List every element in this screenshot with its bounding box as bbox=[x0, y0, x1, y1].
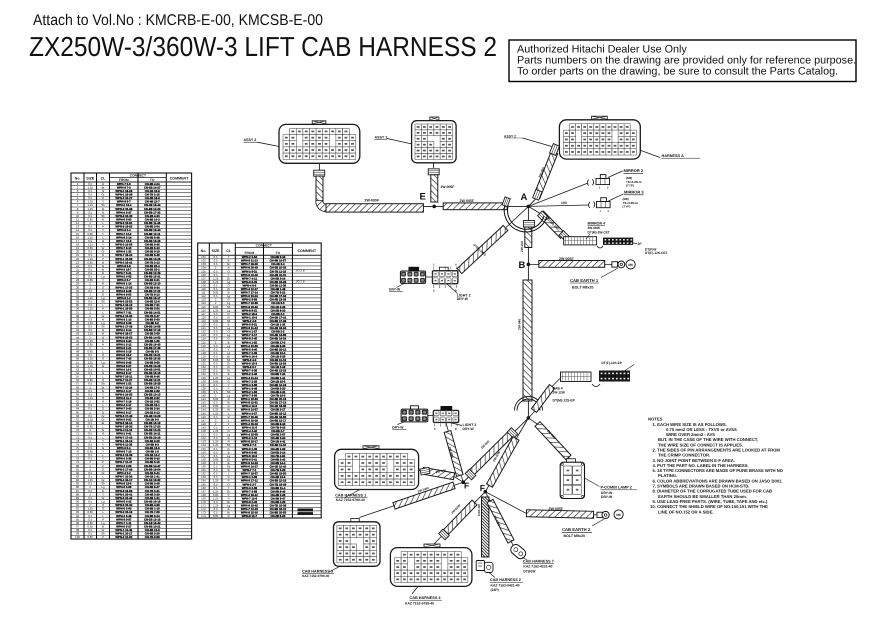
svg-text:B: B bbox=[519, 260, 526, 271]
svg-text:M8: M8 bbox=[628, 263, 633, 267]
svg-text:2W-005F: 2W-005F bbox=[549, 507, 565, 511]
svg-text:CAB EARTH 1: CAB EARTH 1 bbox=[570, 278, 599, 283]
svg-text:COMMENT: COMMENT bbox=[170, 177, 189, 181]
svg-text:2W-005F: 2W-005F bbox=[365, 199, 381, 203]
svg-text:BOLT M8x20: BOLT M8x20 bbox=[564, 534, 586, 538]
svg-text:DRY-W: DRY-W bbox=[601, 495, 613, 499]
svg-text:174: 174 bbox=[201, 514, 206, 518]
svg-text:No.: No. bbox=[75, 177, 81, 181]
svg-text:CL: CL bbox=[226, 249, 232, 253]
svg-text:J/C-2 B: J/C-2 B bbox=[295, 280, 304, 284]
svg-text:COMMENT: COMMENT bbox=[298, 249, 317, 253]
svg-text:ASSY 1: ASSY 1 bbox=[375, 136, 388, 140]
svg-text:A: A bbox=[521, 192, 528, 203]
svg-text:2W-010: 2W-010 bbox=[520, 241, 524, 252]
svg-text:LINE OF NO.152 OR A SIDE.: LINE OF NO.152 OR A SIDE. bbox=[658, 509, 714, 514]
svg-text:E: E bbox=[420, 192, 426, 203]
svg-text:ZX250W-3/360W-3 LIFT CAB HARNE: ZX250W-3/360W-3 LIFT CAB HARNESS 2 bbox=[29, 31, 497, 62]
svg-text:KAZ 7152-9799-40: KAZ 7152-9799-40 bbox=[405, 601, 434, 605]
svg-text:CAB 2W: CAB 2W bbox=[477, 504, 481, 516]
svg-text:P: P bbox=[102, 535, 104, 539]
svg-text:KAZ 7152-9799-40: KAZ 7152-9799-40 bbox=[302, 574, 330, 578]
svg-text:2W-12W: 2W-12W bbox=[553, 391, 565, 395]
svg-text:2W-005F: 2W-005F bbox=[559, 257, 575, 261]
svg-text:CAB EARTH 2: CAB EARTH 2 bbox=[562, 527, 591, 532]
svg-text:2P: 2P bbox=[638, 242, 643, 246]
svg-text:DT(F)W: DT(F)W bbox=[523, 569, 536, 573]
svg-text:CL: CL bbox=[101, 177, 107, 181]
svg-text:CAB HARNESS 1: CAB HARNESS 1 bbox=[335, 493, 366, 497]
svg-text:SIZE: SIZE bbox=[212, 249, 221, 253]
svg-text:CN-2B 5-23: CN-2B 5-23 bbox=[270, 514, 285, 518]
svg-text:(16P): (16P) bbox=[491, 588, 499, 592]
svg-text:CAB HARNESS 4: CAB HARNESS 4 bbox=[410, 596, 442, 600]
svg-text:ASSY 2: ASSY 2 bbox=[504, 135, 516, 139]
svg-text:CAB HARNESS 3: CAB HARNESS 3 bbox=[302, 569, 333, 573]
svg-text:100: 100 bbox=[75, 535, 80, 539]
svg-text:CAB HARNESS 2: CAB HARNESS 2 bbox=[490, 578, 521, 582]
svg-text:DT(M)-2W-CET: DT(M)-2W-CET bbox=[588, 230, 610, 234]
svg-text:J/C-2 B: J/C-2 B bbox=[295, 268, 304, 272]
svg-text:DT(F)-12S-CET: DT(F)-12S-CET bbox=[645, 251, 668, 255]
svg-text:KAZ 7162-0421-40: KAZ 7162-0421-40 bbox=[491, 583, 520, 587]
svg-text:R: R bbox=[228, 514, 230, 518]
svg-text:P-COMBI LAMP 2: P-COMBI LAMP 2 bbox=[601, 486, 632, 490]
svg-text:To order parts on the drawing,: To order parts on the drawing, be sure t… bbox=[517, 66, 838, 78]
svg-text:(TYP): (TYP) bbox=[626, 183, 634, 187]
svg-text:Attach to Vol.No : KMCRB-E-00,: Attach to Vol.No : KMCRB-E-00, KMCSB-E-0… bbox=[33, 12, 323, 29]
svg-text:(TYP): (TYP) bbox=[623, 204, 631, 208]
svg-text:0.85: 0.85 bbox=[213, 514, 219, 518]
svg-text:ASSY 3: ASSY 3 bbox=[244, 138, 257, 142]
svg-text:DT(M)-12S-EP: DT(M)-12S-EP bbox=[553, 398, 576, 402]
svg-text:WPN-8 13-7: WPN-8 13-7 bbox=[242, 514, 258, 518]
svg-text:SIZE: SIZE bbox=[86, 177, 95, 181]
svg-text:M8: M8 bbox=[616, 513, 621, 517]
svg-text:2W-040: 2W-040 bbox=[518, 319, 522, 330]
svg-text:CAB HARNESS 7: CAB HARNESS 7 bbox=[523, 559, 554, 563]
svg-text:DRY-W: DRY-W bbox=[392, 426, 404, 430]
svg-text:WPN-2 12-60: WPN-2 12-60 bbox=[115, 535, 132, 539]
svg-text:DRY-W: DRY-W bbox=[389, 287, 401, 291]
svg-text:CN-7B 9-55: CN-7B 9-55 bbox=[145, 535, 160, 539]
svg-text:MIRROR 4: MIRROR 4 bbox=[588, 222, 606, 226]
svg-text:DRY-W: DRY-W bbox=[601, 491, 613, 495]
svg-text:BOLT M8x20: BOLT M8x20 bbox=[572, 286, 594, 290]
svg-text:MIRROR 3: MIRROR 3 bbox=[624, 190, 644, 195]
svg-text:0.85: 0.85 bbox=[87, 535, 93, 539]
svg-text:2W-005F: 2W-005F bbox=[460, 199, 476, 203]
svg-text:MIRROR 2: MIRROR 2 bbox=[624, 168, 644, 173]
svg-text:KAZ 7152-9799-40: KAZ 7152-9799-40 bbox=[336, 498, 365, 502]
svg-text:DRY-W: DRY-W bbox=[463, 427, 475, 431]
svg-text:2W-005F: 2W-005F bbox=[441, 185, 455, 189]
svg-text:No.: No. bbox=[201, 249, 207, 253]
svg-text:DT(F)-12S-EP: DT(F)-12S-EP bbox=[602, 361, 623, 365]
svg-text:DRY-W: DRY-W bbox=[457, 297, 469, 301]
svg-text:100: 100 bbox=[561, 201, 567, 205]
svg-text:HARNESS A: HARNESS A bbox=[662, 154, 684, 158]
svg-text:KAZ 7162-4231-40: KAZ 7162-4231-40 bbox=[523, 565, 552, 569]
